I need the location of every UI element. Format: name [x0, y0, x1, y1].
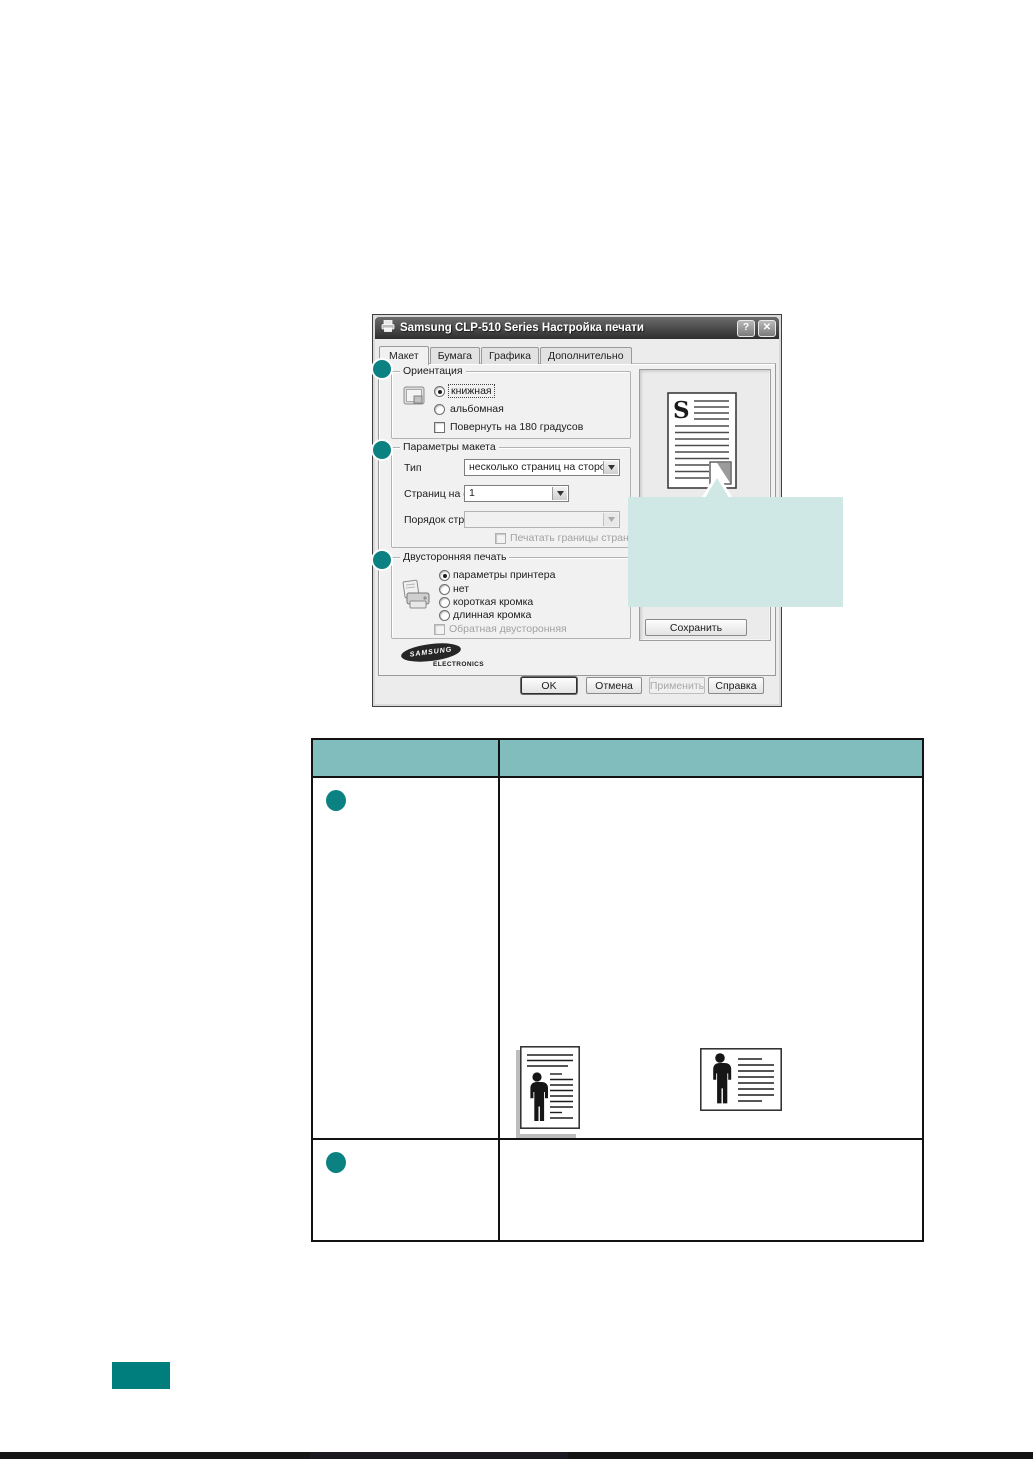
pages-per-side-value: 1	[469, 487, 475, 499]
duplex-none-label[interactable]: нет	[453, 583, 469, 595]
tab-paper[interactable]: Бумага	[430, 347, 480, 364]
callout-bubble	[628, 497, 843, 607]
landscape-radio[interactable]	[434, 404, 445, 415]
type-dropdown[interactable]: несколько страниц на стороне	[464, 459, 620, 476]
type-dropdown-value: несколько страниц на стороне	[469, 461, 617, 473]
dialog-title: Samsung CLP-510 Series Настройка печати	[400, 322, 737, 334]
type-label: Тип	[404, 462, 422, 474]
print-borders-checkbox	[495, 533, 506, 544]
explanation-table	[311, 738, 924, 1242]
callout-marker-layout-options	[371, 439, 393, 461]
table-marker-1	[326, 790, 346, 811]
duplex-group: Двусторонняя печать параметры принтера н…	[391, 557, 631, 639]
duplex-printer-icon	[400, 579, 434, 618]
duplex-long-edge-radio[interactable]	[439, 610, 450, 621]
tab-strip: Макет Бумага Графика Дополнительно	[379, 345, 633, 364]
print-borders-label: Печатать границы страниц	[510, 532, 641, 544]
ok-button[interactable]: OK	[521, 677, 577, 694]
portrait-orientation-image	[520, 1046, 580, 1134]
samsung-division-text: ELECTRONICS	[433, 661, 484, 668]
duplex-none-radio[interactable]	[439, 584, 450, 595]
duplex-long-edge-label[interactable]: длинная кромка	[453, 609, 531, 621]
orientation-caption: Ориентация	[400, 365, 466, 377]
layout-options-caption: Параметры макета	[400, 441, 499, 453]
save-button[interactable]: Сохранить	[645, 619, 747, 636]
page-number-badge	[112, 1362, 170, 1389]
tab-extras[interactable]: Дополнительно	[540, 347, 632, 364]
duplex-short-edge-label[interactable]: короткая кромка	[453, 596, 533, 608]
orientation-icon	[402, 385, 428, 414]
landscape-orientation-image	[700, 1048, 782, 1116]
duplex-printer-setting-radio[interactable]	[439, 570, 450, 581]
chevron-down-icon[interactable]	[552, 487, 567, 500]
chevron-down-icon	[603, 513, 618, 526]
reverse-duplex-checkbox	[434, 624, 445, 635]
duplex-printer-setting-label[interactable]: параметры принтера	[453, 569, 555, 581]
duplex-caption: Двусторонняя печать	[400, 551, 509, 563]
chevron-down-icon[interactable]	[603, 461, 618, 474]
table-row-divider	[313, 1138, 922, 1140]
samsung-brand-text: SAMSUNG	[409, 646, 452, 658]
layout-options-group: Параметры макета Тип несколько страниц н…	[391, 447, 631, 548]
dialog-titlebar[interactable]: Samsung CLP-510 Series Настройка печати …	[375, 317, 779, 339]
tab-graphics[interactable]: Графика	[481, 347, 539, 364]
cancel-button[interactable]: Отмена	[586, 677, 642, 694]
landscape-radio-label[interactable]: альбомная	[450, 403, 504, 415]
table-header-row	[313, 740, 922, 778]
rotate-180-checkbox[interactable]	[434, 422, 445, 433]
printer-icon	[381, 319, 395, 337]
rotate-180-label[interactable]: Повернуть на 180 градусов	[450, 421, 583, 433]
portrait-radio-label[interactable]: книжная	[448, 384, 495, 398]
table-marker-2	[326, 1152, 346, 1173]
page-order-dropdown	[464, 511, 620, 528]
close-button[interactable]: ✕	[758, 320, 776, 337]
samsung-logo: SAMSUNG ELECTRONICS	[399, 644, 494, 672]
duplex-short-edge-radio[interactable]	[439, 597, 450, 608]
callout-marker-orientation	[371, 358, 393, 380]
portrait-radio[interactable]	[434, 386, 445, 397]
help-action-button[interactable]: Справка	[708, 677, 764, 694]
reverse-duplex-label: Обратная двусторонняя	[449, 623, 567, 635]
help-button[interactable]: ?	[737, 320, 755, 337]
orientation-group: Ориентация книжная альбомная Повернуть н…	[391, 371, 631, 439]
preview-letter: S	[673, 397, 690, 424]
callout-marker-duplex	[371, 549, 393, 571]
apply-button: Применить	[649, 677, 705, 694]
pages-per-side-dropdown[interactable]: 1	[464, 485, 569, 502]
page-bottom-strip	[0, 1452, 1033, 1459]
table-column-divider	[498, 740, 500, 1240]
